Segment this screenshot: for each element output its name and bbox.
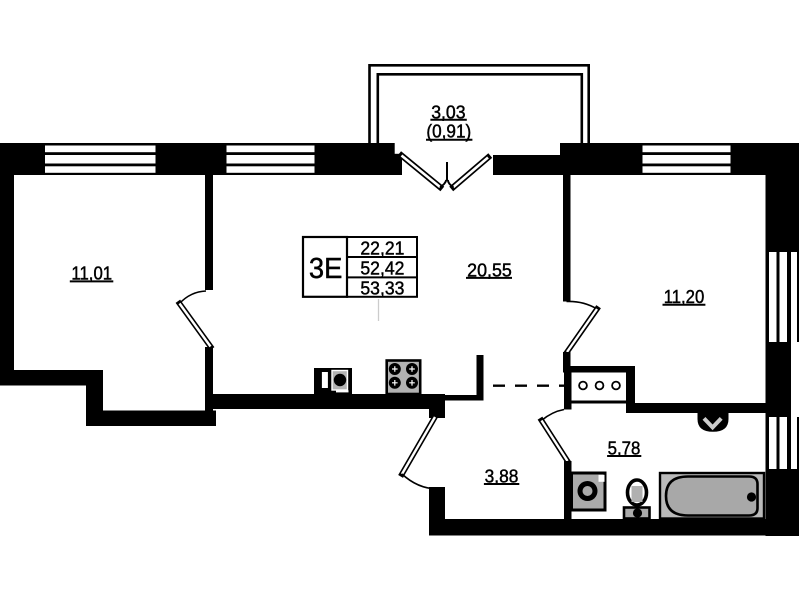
svg-text:53,33: 53,33 [360, 278, 404, 299]
svg-text:(0,91): (0,91) [426, 121, 471, 142]
svg-text:22,21: 22,21 [360, 238, 404, 259]
svg-text:3Е: 3Е [309, 253, 343, 285]
svg-text:52,42: 52,42 [360, 257, 404, 278]
